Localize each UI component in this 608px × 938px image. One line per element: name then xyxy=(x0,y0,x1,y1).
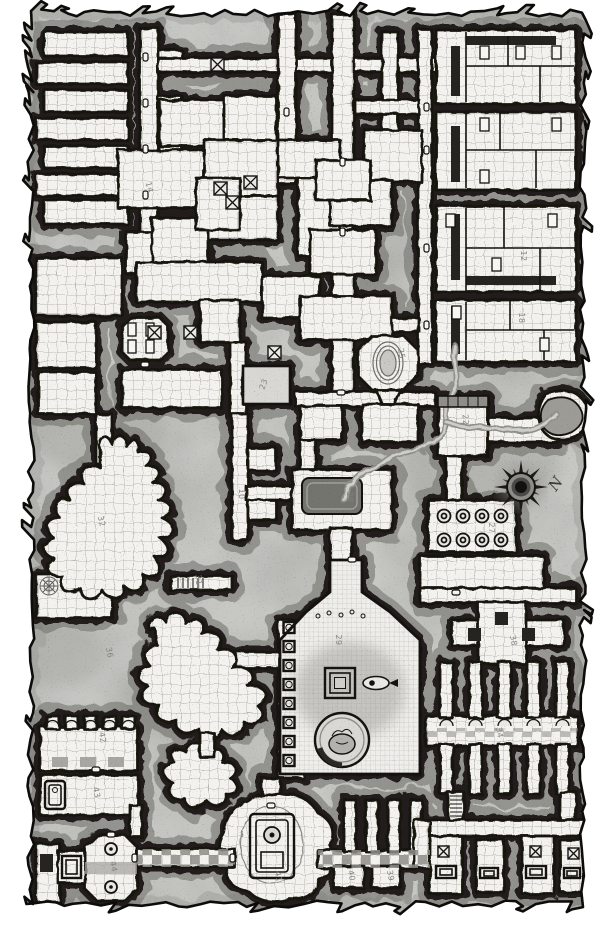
compass-rose xyxy=(494,460,548,514)
dungeon-map: 1412182325222728102931323638343940414243… xyxy=(0,0,608,938)
room-number-label: 12 xyxy=(519,251,528,262)
room-number-label: 38 xyxy=(508,634,519,646)
room-number-label: 43 xyxy=(91,786,102,798)
room-number-label: 34 xyxy=(494,726,505,738)
room-number-label: 10 xyxy=(237,489,246,500)
room-number-label: 31 xyxy=(194,574,204,586)
dungeon-map-page: 1412182325222728102931323638343940414243… xyxy=(0,0,608,938)
room-number-label: 44 xyxy=(108,860,119,872)
room-number-label: 25 xyxy=(396,347,407,359)
room-number-label: 42 xyxy=(97,731,108,743)
map-content: 1412182325222728102931323638343940414243… xyxy=(0,0,608,938)
room-number-label: 36 xyxy=(104,646,115,658)
room-number-label: 18 xyxy=(517,313,526,324)
room-number-label: 39 xyxy=(385,869,396,881)
room-number-label: 40 xyxy=(346,869,357,881)
room-number-label: 29 xyxy=(334,635,343,646)
room-number-label: 27 xyxy=(487,523,496,534)
room-number-label: 28 xyxy=(345,492,354,503)
room-number-label: 22 xyxy=(461,414,471,426)
room-number-label: 41 xyxy=(273,870,284,882)
